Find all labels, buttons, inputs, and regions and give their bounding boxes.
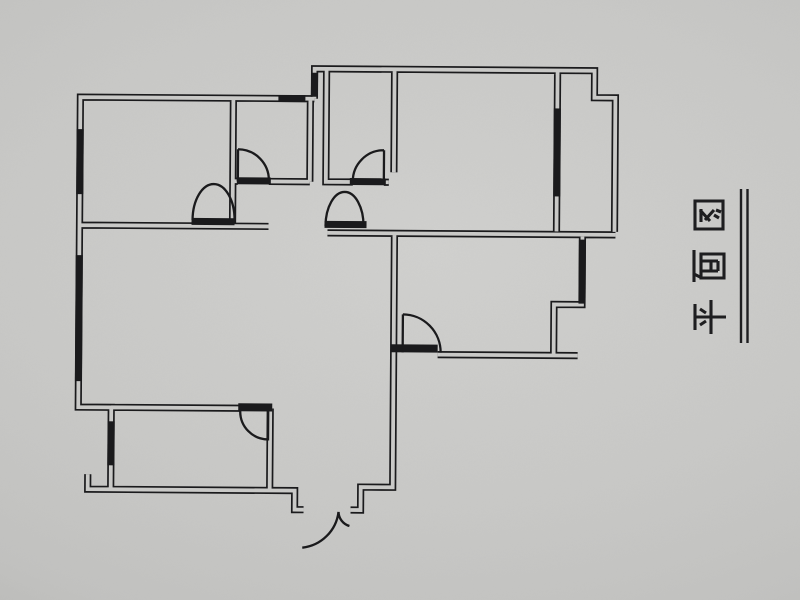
door-threshold <box>192 218 235 225</box>
door-threshold <box>391 344 438 352</box>
door-threshold <box>238 403 272 411</box>
window-marker <box>278 95 305 102</box>
floor-plan-svg <box>0 0 800 600</box>
door-threshold <box>237 177 271 184</box>
window-marker <box>578 240 585 304</box>
window-marker <box>107 421 114 465</box>
door-threshold <box>325 221 367 228</box>
floor-plan-photo: 平面图 <box>0 0 800 600</box>
window-marker <box>76 129 83 194</box>
window-marker <box>311 73 318 97</box>
window-marker <box>75 255 83 381</box>
paper-texture <box>0 0 800 600</box>
door-threshold <box>350 178 386 185</box>
window-marker <box>553 108 561 196</box>
